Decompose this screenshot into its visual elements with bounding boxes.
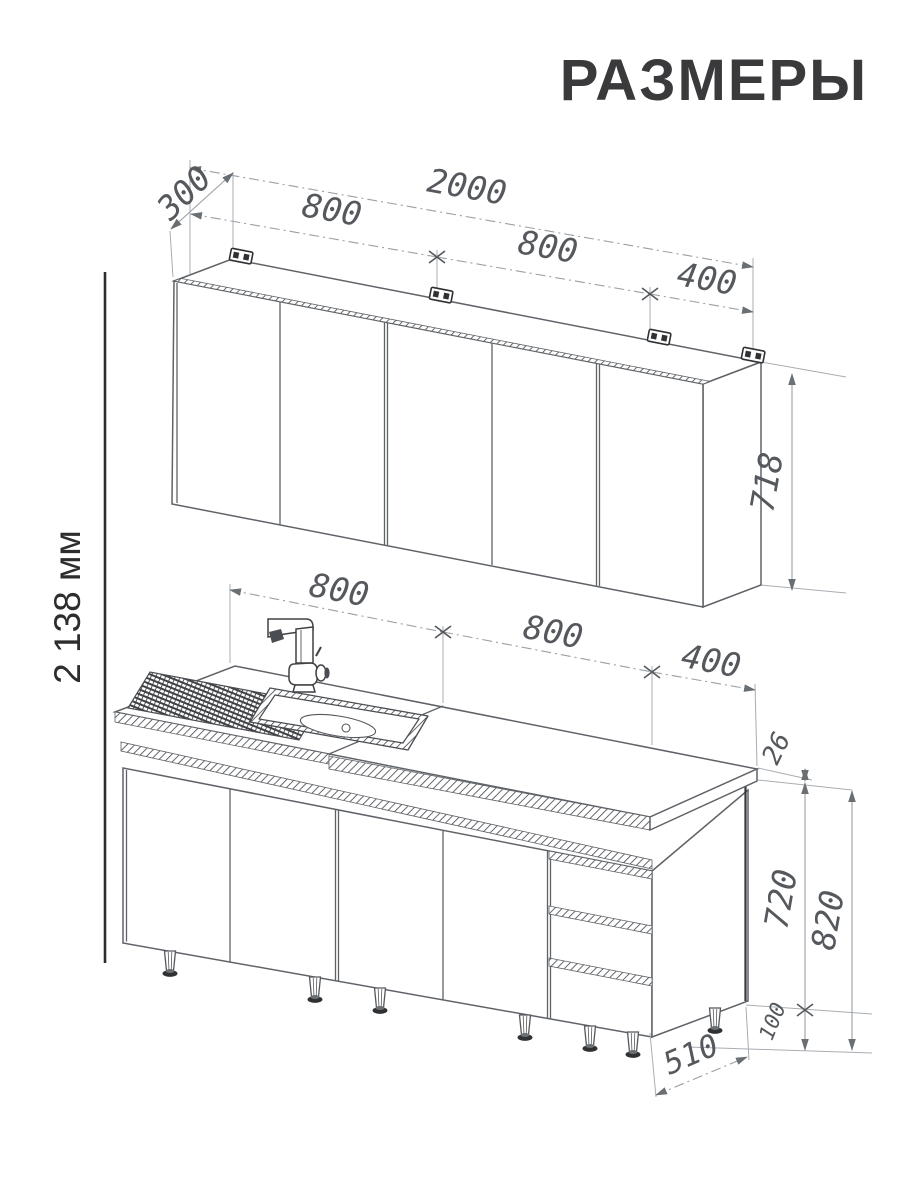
adjustable-leg	[308, 977, 323, 1003]
wall-cabinets: 2000 800 800 400 300 718	[148, 158, 846, 607]
faucet-lever	[316, 647, 321, 656]
dim-carcass-height: 720	[756, 866, 805, 931]
kitchen-dimension-drawing: 2000 800 800 400 300 718 2 138 мм	[0, 0, 900, 1200]
overall-height-label: 2 138 мм	[47, 530, 88, 684]
dim-wall-section3: 400	[674, 254, 739, 303]
adjustable-leg	[163, 951, 178, 977]
dimensions-sheet: 2000 800 800 400 300 718 2 138 мм	[0, 0, 900, 1200]
extension-line	[761, 362, 846, 377]
page-title: РАЗМЕРЫ	[560, 48, 868, 113]
adjustable-leg	[518, 1015, 533, 1041]
leader-line	[758, 768, 812, 780]
faucet-base	[293, 685, 315, 692]
dim-total-height: 820	[803, 887, 852, 952]
extension-line	[650, 1033, 656, 1097]
dim-base-depth: 510	[658, 1027, 724, 1082]
faucet-column	[296, 627, 313, 663]
dim-base-section3: 400	[678, 636, 744, 686]
adjustable-leg	[583, 1026, 598, 1052]
dim-wall-section2: 800	[515, 222, 580, 271]
faucet-knob-cap	[324, 668, 329, 679]
faucet-body	[289, 663, 317, 685]
adjustable-leg	[373, 988, 388, 1014]
dim-countertop-thickness: 26	[756, 728, 797, 769]
dim-wall-section1: 800	[299, 185, 364, 234]
base-cabinet-side-panel	[652, 790, 748, 1037]
base-cabinets: 800 800 400 26 720 820 100 510	[115, 565, 872, 1097]
overall-height: 2 138 мм	[47, 272, 105, 963]
extension-line	[746, 1007, 749, 1060]
dim-wall-total-width: 2000	[424, 161, 509, 213]
adjustable-leg	[626, 1032, 641, 1058]
extension-line	[170, 231, 173, 277]
dim-wall-depth: 300	[148, 158, 219, 228]
extension-line	[761, 585, 846, 593]
